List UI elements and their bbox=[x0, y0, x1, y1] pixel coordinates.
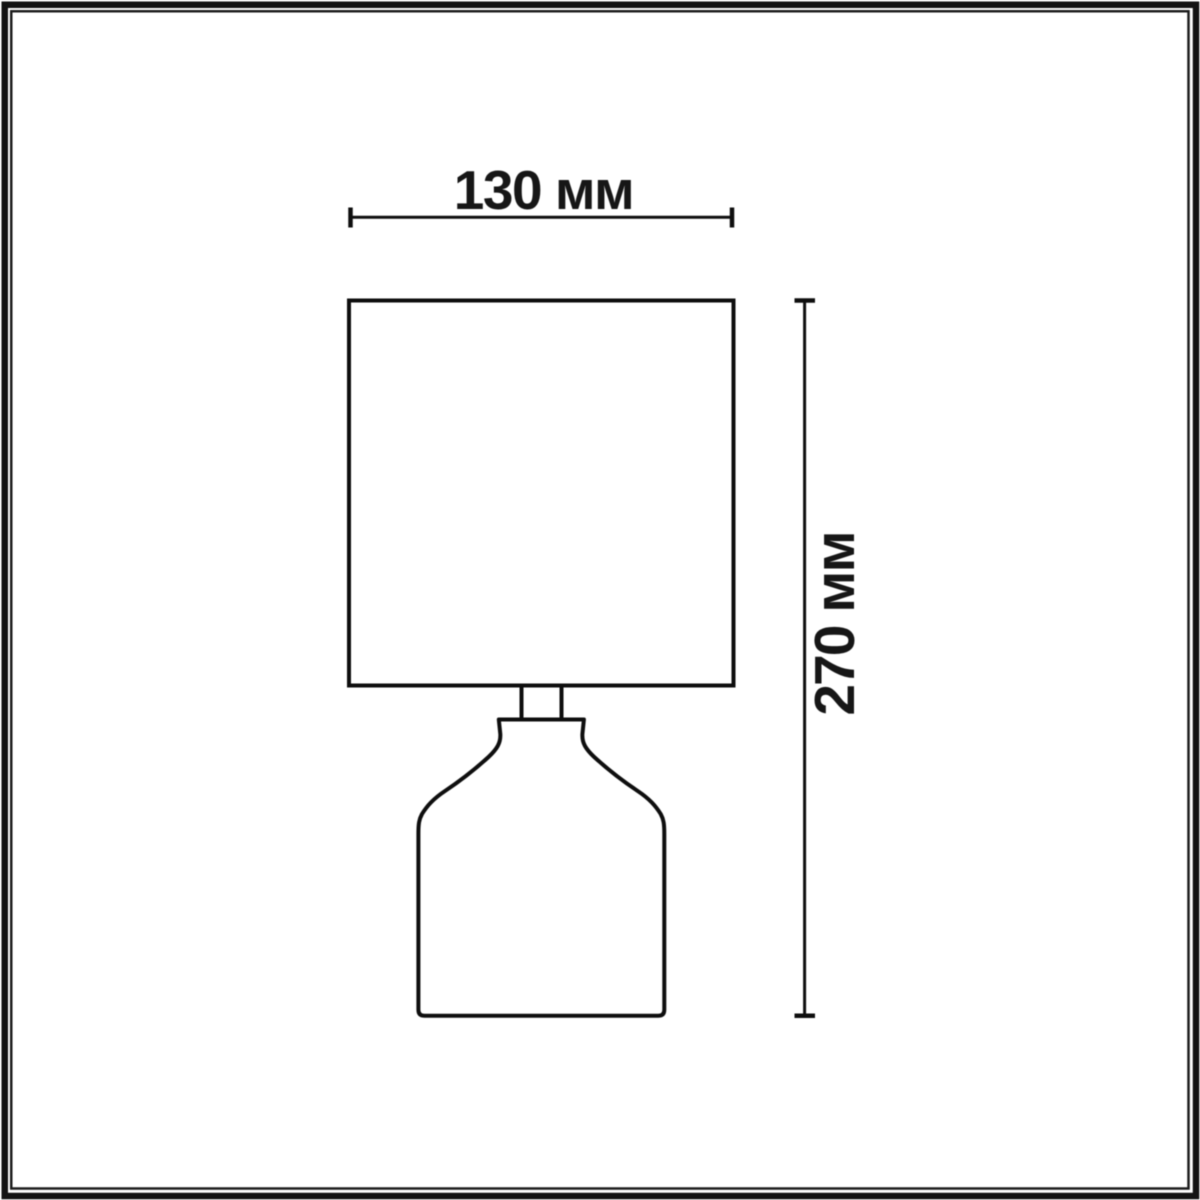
svg-text:130 мм: 130 мм bbox=[454, 159, 633, 221]
svg-text:270 мм: 270 мм bbox=[803, 532, 867, 715]
